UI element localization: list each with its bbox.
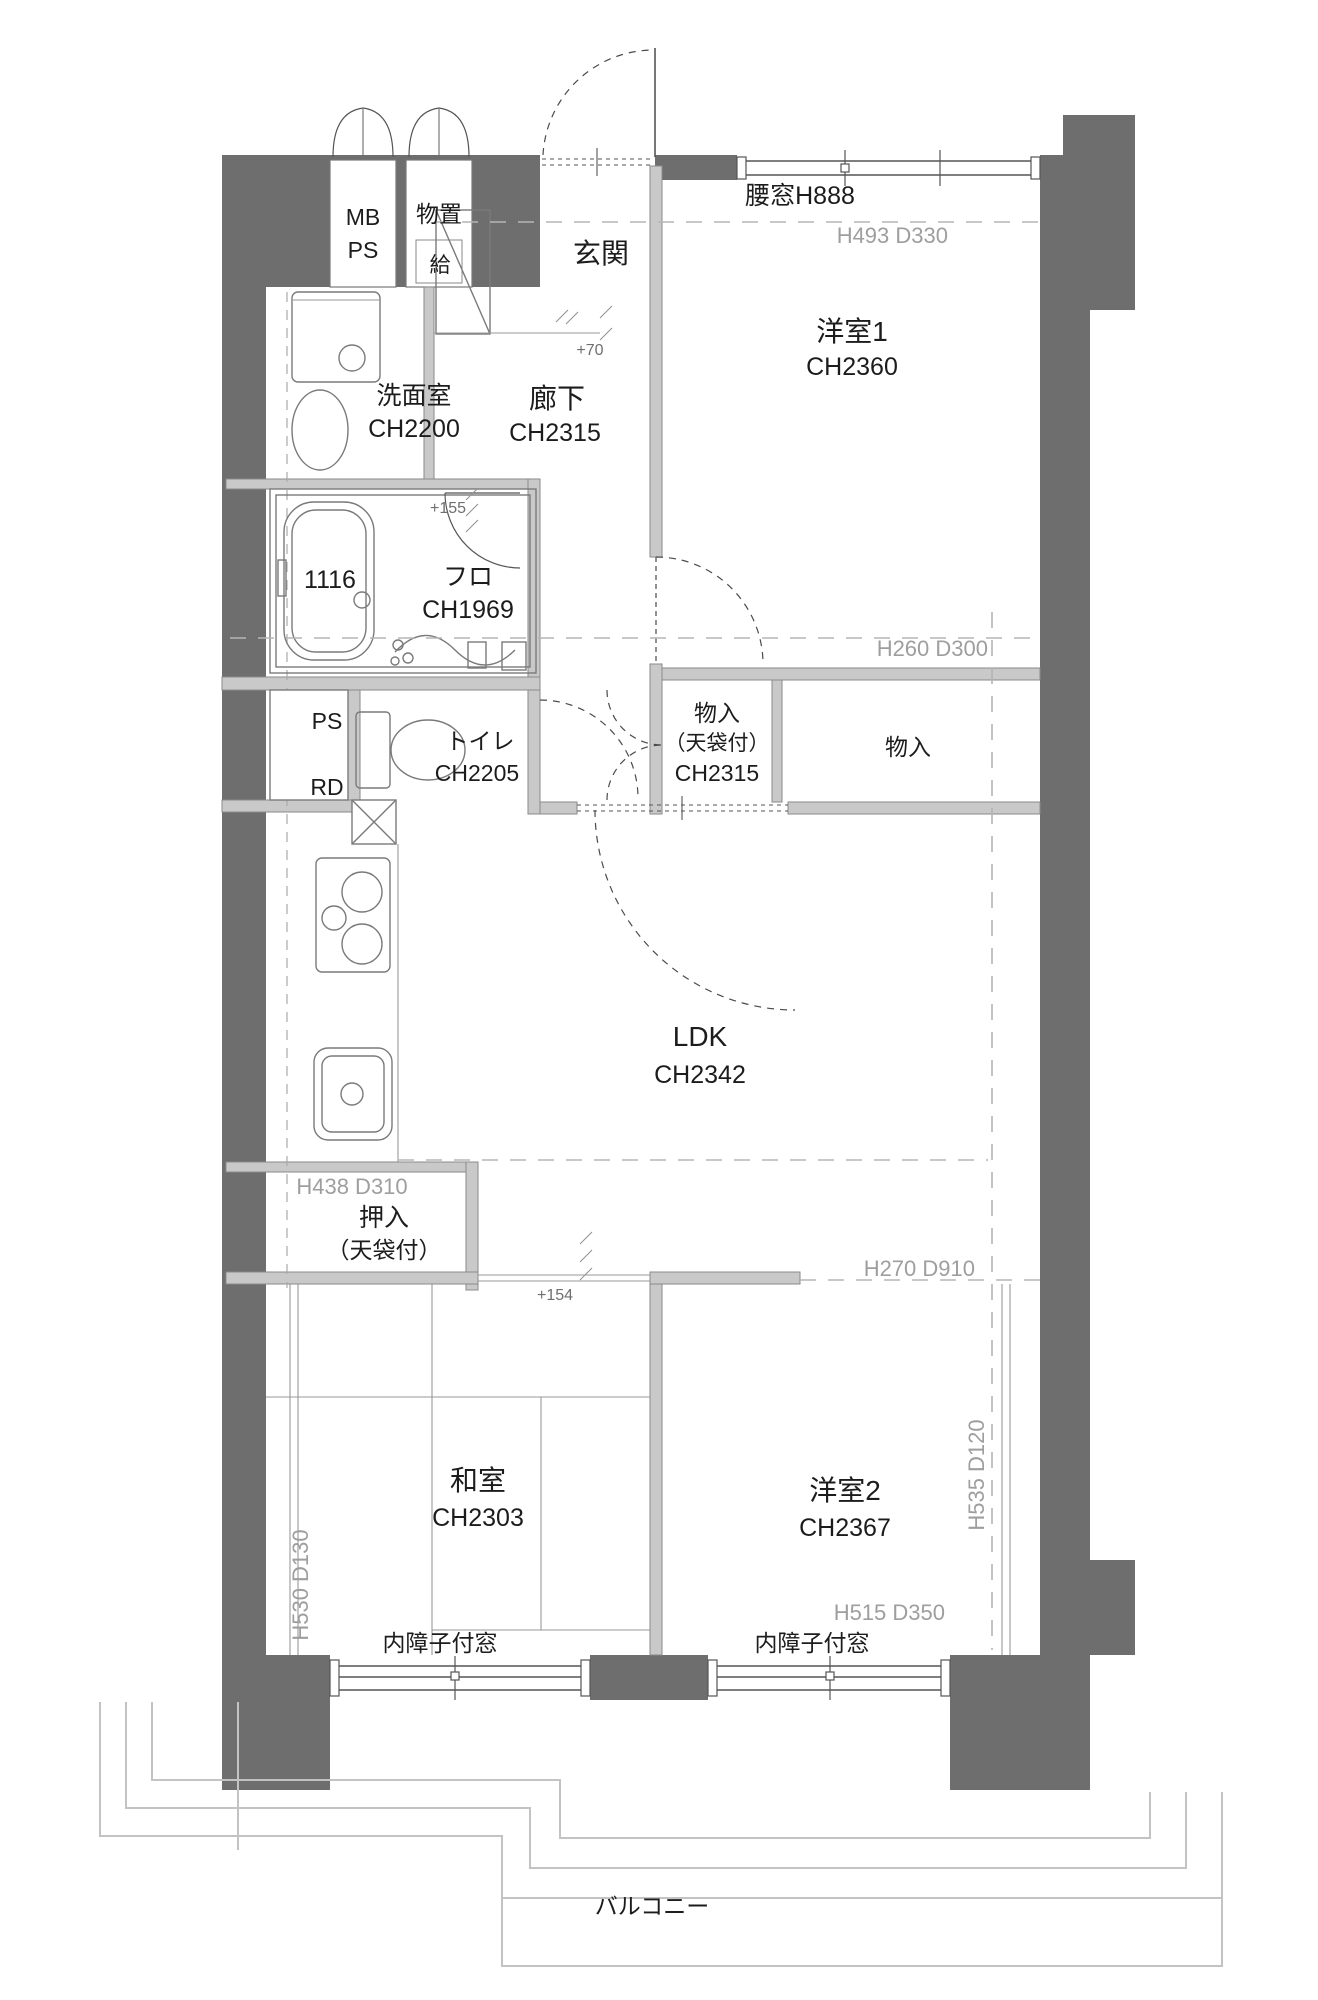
genkan-hatch1 xyxy=(556,310,568,322)
washitsu-hatch1 xyxy=(580,1232,592,1244)
area-label-balcony: バルコニー xyxy=(595,1893,710,1919)
wall-step-right xyxy=(1040,1560,1135,1655)
room-label-washitsu: 和室 xyxy=(450,1465,506,1496)
bathtub-handle xyxy=(278,560,286,596)
sink-outer xyxy=(314,1048,392,1140)
room-label-monoiri-ten2: （天袋付） xyxy=(665,732,770,755)
room-label-ps-top: PS xyxy=(348,237,379,263)
koshimado-lock1 xyxy=(841,164,849,172)
bath-knob3 xyxy=(391,657,399,665)
genkan-hatch2 xyxy=(566,312,578,324)
winB-lock xyxy=(826,1672,834,1680)
bath-hatch2 xyxy=(466,504,478,516)
room-label-monooki: 物置 xyxy=(416,201,462,227)
koshimado-jamb-left xyxy=(737,157,746,179)
room-label-monoiri-ten: 物入 xyxy=(694,700,740,726)
room-label-toilet: トイレ xyxy=(446,728,515,754)
wall-yoshitsu1-corridor xyxy=(650,166,662,557)
entrance-door xyxy=(542,48,655,176)
bath-knob2 xyxy=(403,653,413,663)
sink-drain xyxy=(341,1083,363,1105)
mb-ps-door-arc-right xyxy=(363,108,393,157)
bathtub-size: 1116 xyxy=(304,566,356,594)
washer-pan xyxy=(292,292,380,382)
window-label-uchishoji-right: 内障子付窓 xyxy=(755,1630,870,1656)
dim-h530-d130: H530 D130 xyxy=(288,1529,313,1640)
ch-yoshitsu1: CH2360 xyxy=(806,353,898,381)
dim-h535-d120: H535 D120 xyxy=(964,1419,989,1530)
room-label-yoshitsu1: 洋室1 xyxy=(816,316,888,347)
room-label-oshiire2: （天袋付） xyxy=(327,1237,442,1263)
room-label-rd: RD xyxy=(310,774,343,800)
room-label-kyu: 給 xyxy=(430,254,451,277)
step-furo: +155 xyxy=(430,500,466,517)
ch-senmenshitsu: CH2200 xyxy=(368,415,460,443)
toilet-tank xyxy=(356,712,390,788)
wall-left xyxy=(222,155,266,1702)
wall-monoiri-west xyxy=(650,664,662,814)
wall-oshiire-top xyxy=(226,1162,478,1172)
wall-toilet-corridor xyxy=(528,690,540,814)
yoshitsu1-door xyxy=(656,557,763,664)
ch-rouka: CH2315 xyxy=(509,419,601,447)
washitsu-hatch3 xyxy=(580,1268,592,1280)
ldk-door-arc xyxy=(595,810,795,1010)
wall-ldk-yoshitsu2 xyxy=(650,1272,800,1284)
kitchen xyxy=(314,800,398,1162)
stove-burner1 xyxy=(342,872,382,912)
step-genkan: +70 xyxy=(576,342,603,359)
bottom-window-left xyxy=(330,1656,590,1700)
winA-lock xyxy=(451,1672,459,1680)
ch-yoshitsu2: CH2367 xyxy=(799,1514,891,1542)
ch-furo: CH1969 xyxy=(422,596,514,624)
ch-toilet: CH2205 xyxy=(435,760,519,786)
washer-drain xyxy=(339,345,365,371)
sink-inner xyxy=(322,1056,384,1132)
wall-ldk-top-left-stub xyxy=(540,802,577,814)
dim-h270-d910: H270 D910 xyxy=(864,1256,975,1281)
winA-jamb-left xyxy=(330,1660,339,1696)
wall-oshiire-bottom xyxy=(226,1272,478,1284)
dim-h493-d330: H493 D330 xyxy=(837,223,948,248)
room-label-furo: フロ xyxy=(443,563,493,591)
ch-ldk: CH2342 xyxy=(654,1061,746,1089)
partition-walls xyxy=(222,166,1040,1655)
wall-corner-bottom-right xyxy=(950,1655,1090,1790)
monooki-door-arc-right xyxy=(439,108,469,157)
wall-ldk-top-right xyxy=(788,802,1040,814)
genkan-hatch3 xyxy=(600,306,612,318)
winB-jamb-left xyxy=(708,1660,717,1696)
koshimado-window xyxy=(737,150,1040,186)
stove-burner3 xyxy=(322,906,346,930)
wall-pilaster-top-right xyxy=(1063,115,1135,310)
stove-burner2 xyxy=(342,924,382,964)
koshimado-jamb-right xyxy=(1031,157,1040,179)
winA-jamb-right xyxy=(581,1660,590,1696)
wall-oshiire-east xyxy=(466,1162,478,1290)
room-label-genkan: 玄関 xyxy=(573,238,629,269)
bottom-window-right xyxy=(708,1656,950,1700)
entrance-door-swing-arc xyxy=(543,50,653,155)
washitsu-entry xyxy=(478,1232,650,1281)
yoshitsu1-door-arc xyxy=(656,557,763,664)
yoshitsu2-side-strip xyxy=(1002,1284,1010,1655)
room-label-mb: MB xyxy=(346,204,381,230)
window-label-koshimado: 腰窓H888 xyxy=(745,182,855,210)
dim-h260-d300: H260 D300 xyxy=(877,636,988,661)
bathtub-drain xyxy=(354,592,370,608)
dim-h515-d350: H515 D350 xyxy=(834,1600,945,1625)
room-label-ps: PS xyxy=(312,708,343,734)
wall-monoiri-divider xyxy=(772,680,782,802)
bath-stool xyxy=(502,642,526,670)
toilet-door-arc xyxy=(540,700,638,798)
room-label-yoshitsu2: 洋室2 xyxy=(809,1475,881,1506)
ch-washitsu: CH2303 xyxy=(432,1504,524,1532)
wall-right xyxy=(1040,155,1090,1655)
genkan-hatch4 xyxy=(600,328,612,340)
room-label-rouka: 廊下 xyxy=(529,383,585,414)
room-label-senmenshitsu: 洗面室 xyxy=(376,382,451,410)
bath-hatch1 xyxy=(466,488,478,500)
floor-plan-canvas: MB PS 物置 給 玄関 腰窓H888 H493 D330 洋室1 CH236… xyxy=(0,0,1318,2000)
bath-hatch3 xyxy=(466,520,478,532)
wall-bath-toilet xyxy=(222,677,540,690)
dim-h438-d310: H438 D310 xyxy=(296,1174,407,1199)
mb-ps-door-arc-left xyxy=(333,108,363,157)
room-label-monoiri: 物入 xyxy=(885,734,931,760)
washbasin xyxy=(292,390,348,470)
window-label-uchishoji-left: 内障子付窓 xyxy=(383,1630,498,1656)
wall-washitsu-yoshitsu2 xyxy=(650,1284,662,1655)
monooki-door-arc-left xyxy=(409,108,439,157)
ch-monoiri-ten: CH2315 xyxy=(675,760,759,786)
wall-pier-bottom-center xyxy=(590,1655,708,1700)
outer-walls xyxy=(222,115,1135,1790)
room-label-oshiire: 押入 xyxy=(359,1204,409,1232)
washitsu-hatch2 xyxy=(580,1250,592,1262)
wall-ps-toilet xyxy=(348,690,360,800)
wall-top-mid xyxy=(655,155,737,180)
step-washitsu: +154 xyxy=(537,1287,573,1304)
wall-yoshitsu1-monoiri xyxy=(662,668,1040,680)
wall-senmen-bath xyxy=(226,479,540,489)
floor-plan-page: MB PS 物置 給 玄関 腰窓H888 H493 D330 洋室1 CH236… xyxy=(0,0,1318,2000)
room-label-ldk: LDK xyxy=(673,1021,728,1052)
dimension-dash-lines xyxy=(230,222,1040,1650)
winB-jamb-right xyxy=(941,1660,950,1696)
ldk-door xyxy=(577,796,795,1010)
